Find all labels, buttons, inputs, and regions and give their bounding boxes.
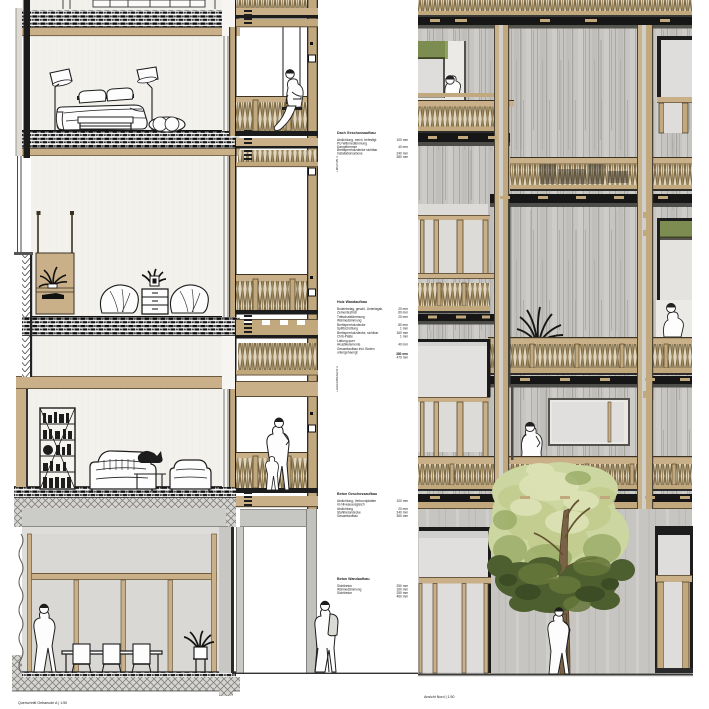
svg-text:20 mm: 20 mm: [398, 315, 408, 319]
svg-text:untergehaengt: untergehaengt: [337, 350, 358, 354]
svg-text:Zementestrich: Zementestrich: [337, 310, 357, 314]
svg-text:Wärmedämmung: Wärmedämmung: [337, 318, 362, 322]
svg-text:im Niveauausgleich: im Niveauausgleich: [337, 502, 365, 506]
svg-text:40 mm: 40 mm: [398, 342, 408, 346]
svg-text:40 mm: 40 mm: [398, 145, 408, 149]
svg-text:Beton Geschossaufbau: Beton Geschossaufbau: [337, 492, 377, 496]
svg-text:1 mm: 1 mm: [400, 326, 408, 330]
svg-text:Akustikelemente: Akustikelemente: [337, 342, 361, 346]
svg-text:470 mm: 470 mm: [396, 355, 408, 359]
svg-text:1 mm: 1 mm: [400, 334, 408, 338]
svg-text:+MGFVBI 3: +MGFVBI 3: [335, 156, 339, 172]
svg-text:+LEEFEBRAEFR 2: +LEEFEBRAEFR 2: [335, 366, 339, 392]
svg-text:Querschnitt Gebaeude A | 1:50: Querschnitt Gebaeude A | 1:50: [18, 701, 67, 705]
svg-text:60 mm: 60 mm: [398, 310, 408, 314]
svg-text:460 mm: 460 mm: [396, 594, 408, 598]
svg-text:Installationsebene: Installationsebene: [337, 152, 363, 156]
svg-text:Beton Wandaufbau: Beton Wandaufbau: [337, 577, 370, 581]
svg-text:CNS-Platte: CNS-Platte: [337, 334, 353, 338]
svg-text:Dach Geschossaufbau: Dach Geschossaufbau: [337, 131, 376, 135]
svg-text:Ansicht Nord | 1:50: Ansicht Nord | 1:50: [424, 695, 455, 699]
svg-text:Sichtbeton: Sichtbeton: [337, 591, 352, 595]
svg-text:380 mm: 380 mm: [396, 155, 408, 159]
svg-text:100 mm: 100 mm: [396, 499, 408, 503]
svg-text:Splittschüttung: Splittschüttung: [337, 326, 358, 330]
svg-text:360 mm: 360 mm: [396, 514, 408, 518]
svg-text:Holz Wandaufbau: Holz Wandaufbau: [337, 300, 367, 304]
svg-text:100 mm: 100 mm: [396, 138, 408, 142]
svg-text:Gesamtaufbau: Gesamtaufbau: [337, 514, 358, 518]
